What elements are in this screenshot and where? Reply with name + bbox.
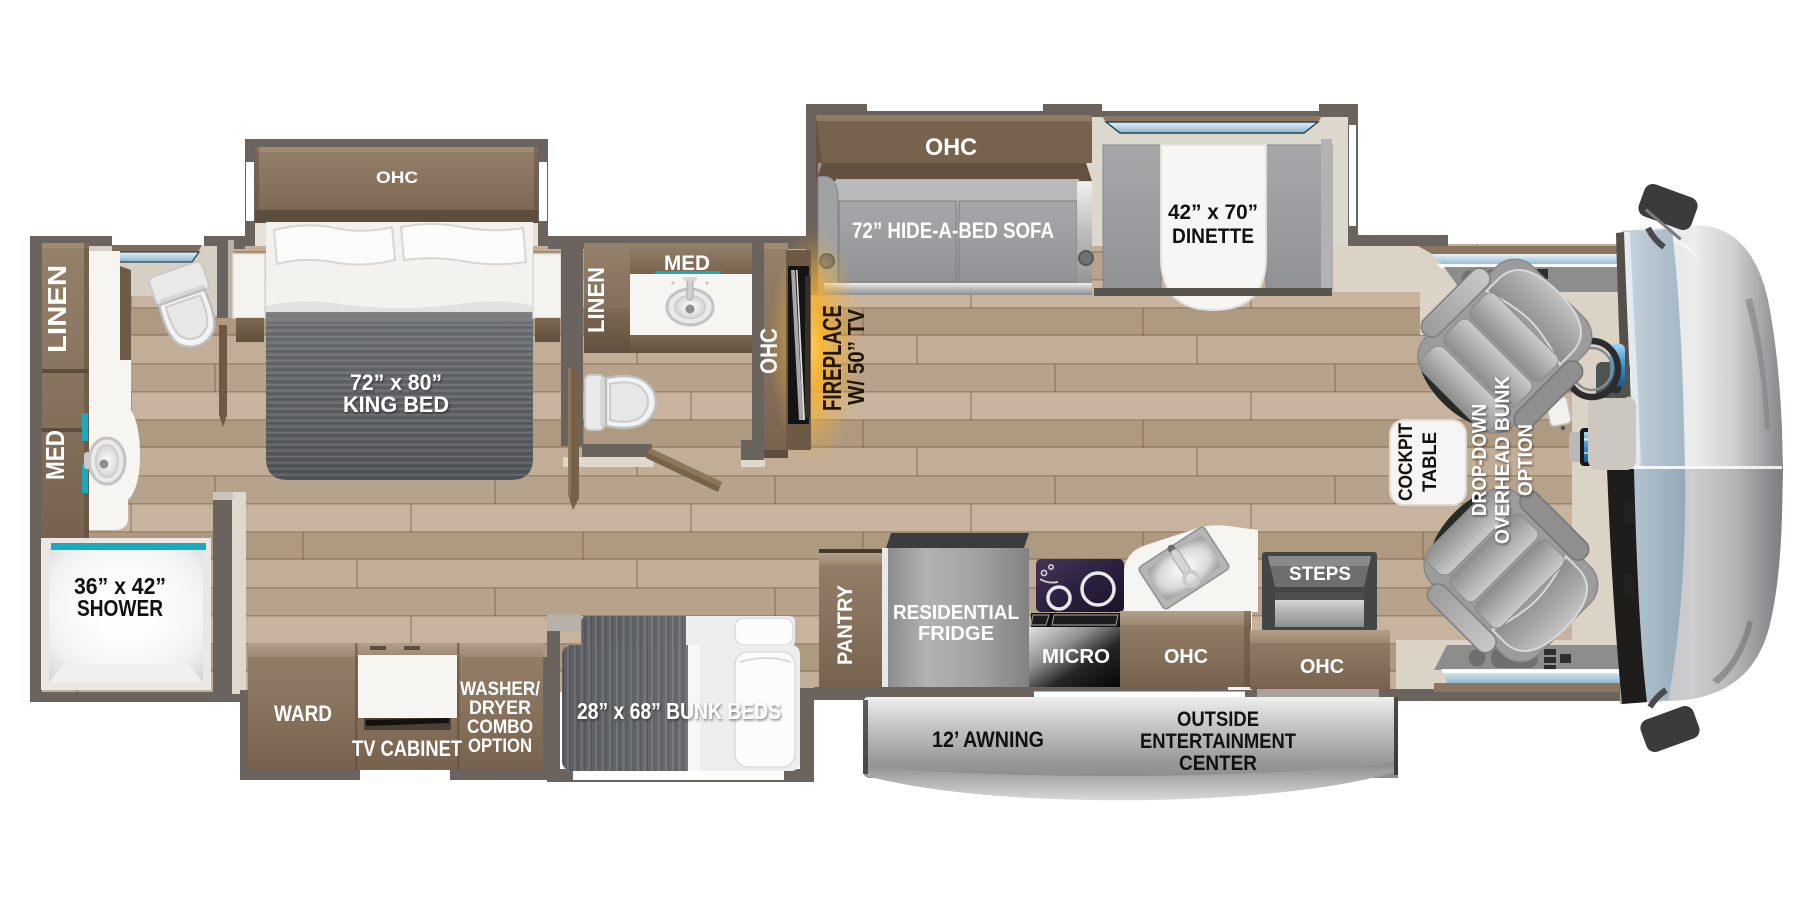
svg-text:OPTION: OPTION bbox=[468, 736, 532, 757]
svg-text:OPTION: OPTION bbox=[1515, 424, 1537, 496]
svg-text:PANTRY: PANTRY bbox=[834, 585, 857, 665]
svg-text:ENTERTAINMENT: ENTERTAINMENT bbox=[1140, 730, 1296, 753]
svg-text:STEPS: STEPS bbox=[1289, 564, 1351, 585]
svg-text:TV CABINET: TV CABINET bbox=[352, 736, 462, 761]
svg-text:OHC: OHC bbox=[1300, 656, 1344, 678]
svg-text:COMBO: COMBO bbox=[467, 717, 533, 738]
svg-text:MED: MED bbox=[40, 430, 70, 480]
svg-text:LINEN: LINEN bbox=[42, 265, 72, 353]
svg-text:TABLE: TABLE bbox=[1420, 432, 1441, 492]
svg-text:28” x 68” BUNK BEDS: 28” x 68” BUNK BEDS bbox=[577, 698, 781, 724]
svg-text:WARD: WARD bbox=[274, 701, 332, 726]
svg-text:OHC: OHC bbox=[376, 168, 418, 187]
svg-text:12’ AWNING: 12’ AWNING bbox=[932, 727, 1044, 752]
svg-text:42” x 70”: 42” x 70” bbox=[1168, 201, 1258, 224]
svg-text:W/ 50” TV: W/ 50” TV bbox=[843, 308, 869, 405]
svg-text:DRYER: DRYER bbox=[469, 698, 531, 719]
svg-text:OHC: OHC bbox=[925, 134, 977, 161]
svg-text:OUTSIDE: OUTSIDE bbox=[1177, 708, 1259, 731]
svg-text:WASHER/: WASHER/ bbox=[460, 679, 541, 700]
svg-text:72” HIDE-A-BED SOFA: 72” HIDE-A-BED SOFA bbox=[852, 218, 1054, 243]
svg-text:OHC: OHC bbox=[1164, 646, 1208, 668]
svg-text:DINETTE: DINETTE bbox=[1172, 225, 1254, 248]
svg-text:DROP-DOWN: DROP-DOWN bbox=[1469, 404, 1491, 516]
svg-text:OVERHEAD BUNK: OVERHEAD BUNK bbox=[1492, 375, 1514, 544]
svg-text:COCKPIT: COCKPIT bbox=[1396, 423, 1417, 501]
svg-text:LINEN: LINEN bbox=[583, 267, 609, 333]
svg-text:CENTER: CENTER bbox=[1179, 752, 1257, 775]
svg-text:MICRO: MICRO bbox=[1042, 646, 1110, 668]
svg-text:KING BED: KING BED bbox=[343, 392, 449, 417]
svg-text:RESIDENTIAL: RESIDENTIAL bbox=[893, 602, 1019, 624]
svg-text:FRIDGE: FRIDGE bbox=[918, 623, 994, 645]
svg-text:SHOWER: SHOWER bbox=[77, 595, 163, 621]
